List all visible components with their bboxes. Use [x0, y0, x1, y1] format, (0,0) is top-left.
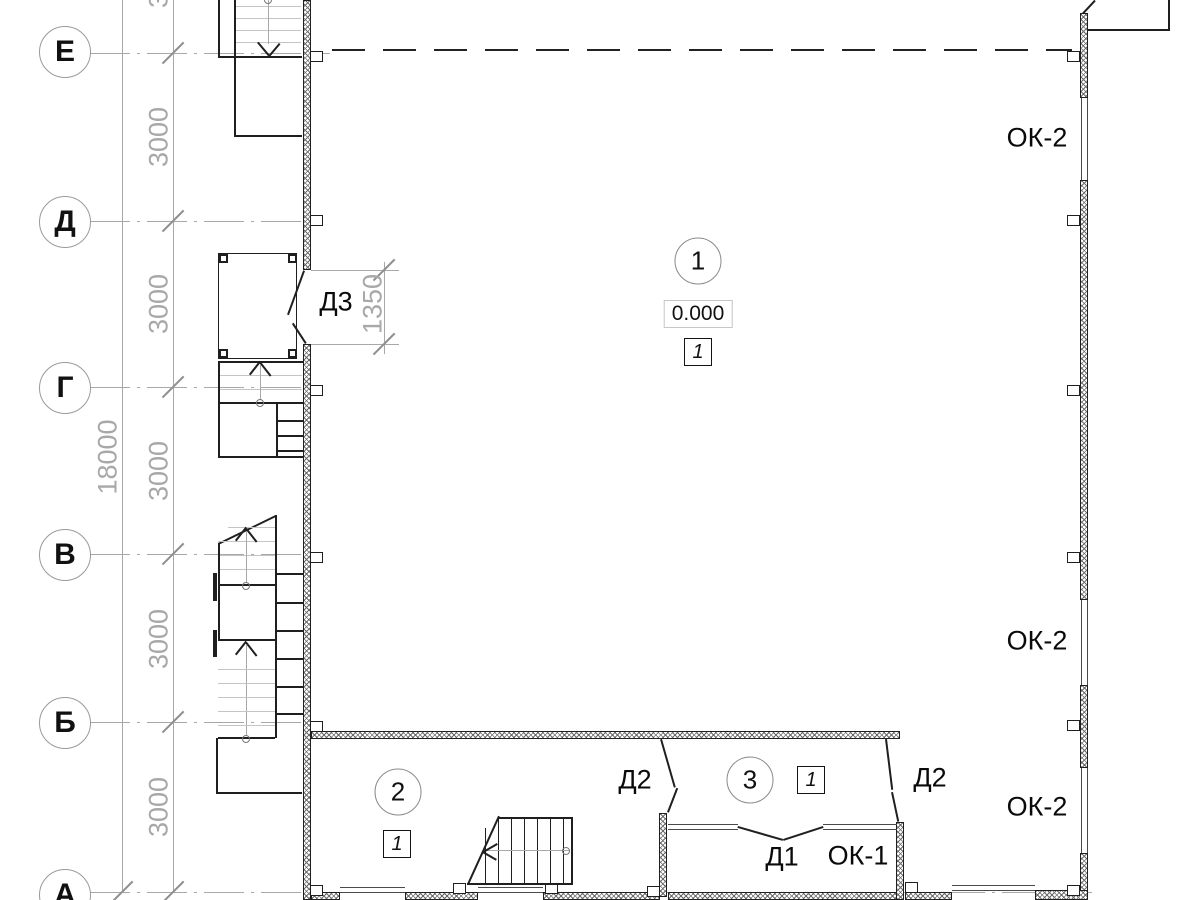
window-label-ok2-mid: ОК-2: [1007, 626, 1068, 657]
stair-landing-edge: [216, 738, 218, 794]
door-d1-leaf: [738, 826, 784, 840]
grid-axis-bubble-a: А: [39, 869, 91, 900]
wall-pier-right-d2: [896, 822, 904, 900]
stair-walkline-start: [242, 582, 250, 590]
corner-mark: [288, 254, 297, 263]
window-ok2-top: [1081, 98, 1088, 180]
column-tick: [453, 883, 466, 894]
stair-walkline: [260, 365, 261, 400]
axis-line-e-dashed: [332, 49, 1072, 51]
wall-bottom-seg3: [543, 892, 660, 900]
wall-left-lower: [303, 344, 311, 900]
axis-label-a: А: [54, 878, 76, 900]
wall-bottom-seg4: [668, 892, 897, 900]
stair-walkline-start: [562, 847, 570, 855]
column-tick: [905, 882, 918, 893]
stair-tread: [277, 686, 303, 688]
dim-ext-line: [311, 344, 399, 345]
window-ok2-bottom: [1081, 768, 1088, 853]
partition-ok1-left: [668, 824, 738, 830]
stair-walkline-start: [242, 735, 250, 743]
stair-tread: [277, 658, 303, 660]
wall-bottom-seg5: [905, 892, 952, 900]
axis-label-d: Д: [54, 205, 75, 239]
door-label-d2-right: Д2: [913, 763, 946, 794]
corner-mark: [219, 254, 228, 263]
column-tick: [1067, 720, 1080, 731]
stair-walkline-start: [264, 0, 272, 4]
wall-bottom-right-corner: [1035, 890, 1088, 900]
stair-tread: [277, 435, 303, 437]
dim-text-bay: 3000: [144, 609, 175, 669]
wall-right-seg3: [1080, 685, 1088, 768]
window-ok2-mid: [1081, 600, 1088, 685]
dim-ext-line: [311, 270, 399, 271]
dim-text-bay-partial: 3000: [144, 0, 175, 8]
door-label-d3: Д3: [319, 287, 352, 318]
axis-line-e: [90, 53, 330, 54]
stair-edge-mark: [213, 630, 217, 657]
room-2-bubble: 2: [375, 769, 422, 816]
dim-text-d3-width: 1350: [358, 274, 389, 334]
stair-tread: [277, 630, 303, 632]
door-label-d2-left: Д2: [618, 765, 651, 796]
stair-tread: [277, 420, 303, 422]
grid-axis-bubble-g: Г: [39, 362, 91, 414]
wall-divider-rooms: [311, 731, 900, 739]
wing-leader-line: [1082, 0, 1095, 14]
column-tick: [1067, 885, 1080, 896]
dim-text-bay: 3000: [144, 777, 175, 837]
stair-tread: [218, 697, 275, 698]
column-tick: [310, 215, 323, 226]
corner-mark: [219, 349, 228, 358]
stair-riser: [485, 828, 486, 884]
column-tick: [310, 885, 323, 896]
column-tick: [1067, 215, 1080, 226]
door-label-d1: Д1: [765, 842, 798, 873]
stair-flight-edge: [498, 817, 573, 819]
room-2-finish-tag: 1: [383, 830, 411, 858]
column-tick: [1067, 51, 1080, 62]
door-d1-leaf: [783, 826, 823, 840]
wall-bottom-seg2: [405, 892, 478, 900]
room-3-finish-tag: 1: [797, 766, 825, 794]
stair-tread: [277, 713, 303, 715]
door-d2-right-leaf: [885, 739, 893, 790]
stair-edge-mark: [213, 573, 217, 601]
window-bottom-1: [340, 887, 405, 893]
column-tick: [310, 51, 323, 62]
wall-pier-left-d2: [659, 813, 667, 897]
window-label-ok2-bottom: ОК-2: [1007, 792, 1068, 823]
stair-tread: [218, 711, 275, 712]
corner-mark: [288, 349, 297, 358]
axis-label-v: В: [54, 538, 76, 572]
room-1-number: 1: [691, 246, 705, 277]
window-bottom-3: [952, 885, 1035, 891]
wing-wall-top: [1088, 29, 1170, 31]
axis-label-b: Б: [54, 706, 76, 740]
stair-tread: [277, 573, 303, 575]
axis-label-e: Е: [55, 35, 75, 69]
stair-walkline: [246, 531, 247, 583]
room-3-number: 3: [743, 765, 757, 796]
stair-top-wall: [218, 0, 220, 57]
wall-left-upper: [303, 0, 311, 270]
stair-tread: [218, 725, 275, 726]
grid-axis-bubble-v: В: [39, 529, 91, 581]
partition-ok1-right: [823, 824, 897, 830]
grid-axis-bubble-e: Е: [39, 26, 91, 78]
axis-line-d: [90, 221, 305, 222]
dim-text-bay: 3000: [144, 107, 175, 167]
stair-side-flight-edge: [275, 515, 277, 738]
stair-tread: [218, 669, 275, 670]
level-value: 0.000: [664, 300, 733, 328]
column-tick: [647, 886, 660, 897]
column-tick: [1067, 552, 1080, 563]
finish-value: 1: [805, 769, 816, 792]
floor-plan-canvas: 3000 3000 3000 3000 3000 3000 18000 Е Д …: [0, 0, 1200, 900]
dim-text-total: 18000: [93, 419, 124, 494]
window-label-ok1: ОК-1: [828, 841, 889, 872]
axis-label-g: Г: [56, 371, 73, 405]
column-tick: [310, 721, 323, 732]
stair-walkline: [268, 0, 269, 44]
door-d2-left-leaf: [660, 739, 675, 788]
stair-side-wall: [218, 543, 220, 641]
finish-value: 1: [391, 833, 402, 856]
door-d2-right-leaf: [891, 792, 899, 822]
stair-walkline: [246, 645, 247, 736]
stair-side-wall: [218, 361, 220, 458]
wall-right-seg2: [1080, 180, 1088, 600]
grid-axis-bubble-d: Д: [39, 196, 91, 248]
wing-wall-right: [1168, 0, 1170, 31]
finish-value: 1: [692, 341, 703, 364]
stair-landing-edge: [218, 456, 303, 458]
stair-landing-edge: [218, 56, 302, 58]
stair-tread: [228, 527, 275, 528]
column-tick: [310, 385, 323, 396]
stair-tread: [277, 450, 303, 452]
axis-line-b: [90, 722, 305, 723]
column-tick: [1067, 385, 1080, 396]
room-1-bubble: 1: [675, 238, 722, 285]
level-mark: 0.000: [664, 300, 733, 328]
window-label-ok2-top: ОК-2: [1007, 123, 1068, 154]
stair-walkline-start: [256, 399, 264, 407]
stair-landing-edge: [216, 792, 302, 794]
stair-tread: [218, 683, 275, 684]
wall-right-seg1: [1080, 13, 1088, 98]
stair-landing-edge: [234, 135, 302, 137]
stair-walkline: [484, 850, 569, 851]
room-2-number: 2: [391, 777, 405, 808]
door-d2-left-leaf: [667, 788, 678, 813]
column-tick: [310, 552, 323, 563]
wall-right-seg4: [1080, 853, 1088, 893]
stair-flight-edge: [467, 883, 573, 885]
stair-tread: [277, 602, 303, 604]
grid-axis-bubble-b: Б: [39, 697, 91, 749]
stair-landing-edge: [234, 56, 236, 137]
dim-text-bay: 3000: [144, 274, 175, 334]
stair-top-wall: [234, 0, 236, 57]
dim-text-bay: 3000: [144, 441, 175, 501]
window-bottom-2: [478, 887, 543, 893]
vestibule-outline: [218, 253, 297, 359]
stair-flight-edge: [571, 817, 573, 885]
room-1-finish-tag: 1: [684, 338, 712, 366]
room-3-bubble: 3: [727, 757, 774, 804]
